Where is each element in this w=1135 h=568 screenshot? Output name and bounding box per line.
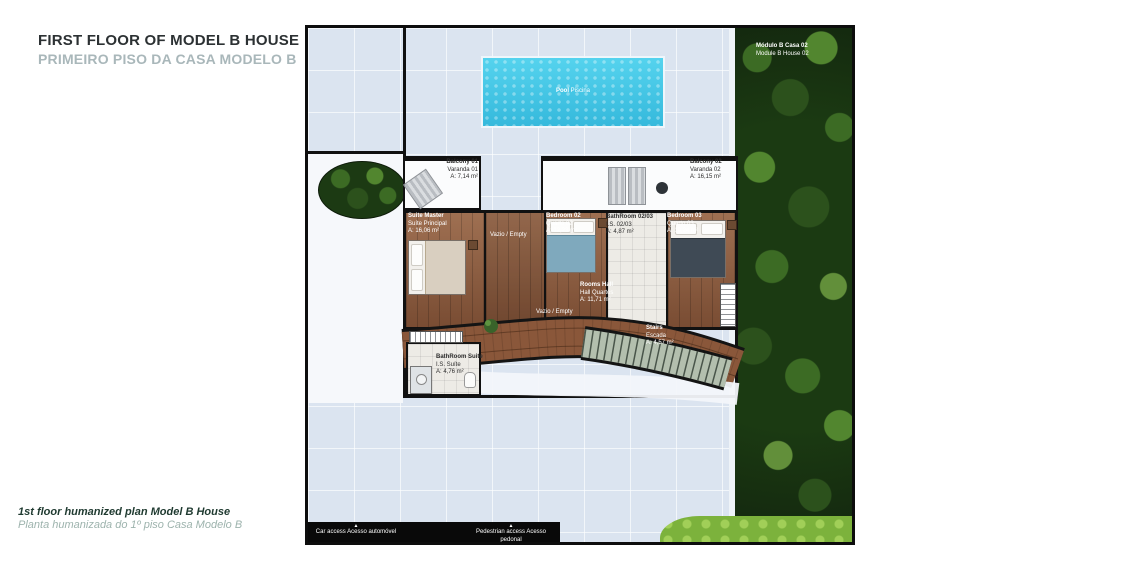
room-label-suite-master: Suite MasterSuíte PrincipalA: 16,06 m²: [408, 213, 447, 236]
trees-strip: [735, 28, 855, 525]
pool: Pool Piscina: [483, 58, 663, 126]
caption-pt: Planta humanizada do 1º piso Casa Modelo…: [18, 519, 242, 531]
room-label-bathroom-suite: BathRoom SuiteI.S. SuíteA: 4,76 m²: [436, 354, 483, 377]
nightstand-icon: [468, 240, 478, 250]
nightstand-icon: [727, 220, 737, 230]
wall-notch-top: [308, 151, 403, 154]
shower-icon: [410, 366, 432, 394]
room-label-bedroom-02: Bedroom 02Quarto 02A: 12,23 m²: [546, 213, 581, 236]
floor-plan: Pool Piscina Módulo B Casa 02 Module B H…: [305, 25, 855, 545]
room-label-balcony-01: Balcony 01Varanda 01A: 7,14 m²: [426, 159, 478, 182]
page: { "header": { "title": "FIRST FLOOR OF M…: [0, 0, 1135, 568]
page-subtitle: PRIMEIRO PISO DA CASA MODELO B: [38, 51, 299, 67]
lawn-patch: [660, 516, 855, 545]
page-title-block: FIRST FLOOR OF MODEL B HOUSE PRIMEIRO PI…: [38, 32, 299, 67]
car-access-label: ▲ Car access Acesso automóvel: [314, 524, 398, 537]
module-label: Módulo B Casa 02 Module B House 02: [756, 42, 809, 58]
lounge-chair-icon: [608, 167, 626, 205]
room-label-rooms-hall: Rooms HallHall QuartosA: 11,71 m²: [580, 282, 613, 305]
room-label-balcony-02: Balcony 02Varanda 02A: 16,15 m²: [690, 159, 722, 182]
pool-label: Pool Piscina: [556, 88, 590, 96]
access-strip: ▲ Car access Acesso automóvel ▲ Pedestri…: [308, 522, 560, 545]
radiator-icon: [409, 331, 463, 343]
bed-suite-master: [408, 240, 466, 295]
caption-block: 1st floor humanized plan Model B House P…: [18, 506, 242, 531]
lounge-chair-icon: [628, 167, 646, 205]
void-label-upper: Vazio / Empty: [490, 232, 527, 240]
page-title: FIRST FLOOR OF MODEL B HOUSE: [38, 32, 299, 49]
hedge-bush: [318, 161, 406, 219]
room-label-bedroom-03: Bedroom 03Quarto 03A: 10,24 m²: [667, 213, 702, 236]
wardrobe-icon: [720, 283, 736, 327]
round-table-icon: [656, 182, 668, 194]
room-label-bathroom-02-03: BathRoom 02/03I.S. 02/03A: 4,87 m²: [606, 214, 653, 237]
pedestrian-access-label: ▲ Pedestrian access Acesso pedonal: [466, 524, 556, 545]
void-label-lower: Vazio / Empty: [536, 309, 573, 317]
room-label-stairs: StairsEscadaA: 4,57 m²: [646, 325, 674, 348]
wall-left-vertical: [403, 28, 406, 156]
caption-en: 1st floor humanized plan Model B House: [18, 506, 242, 518]
